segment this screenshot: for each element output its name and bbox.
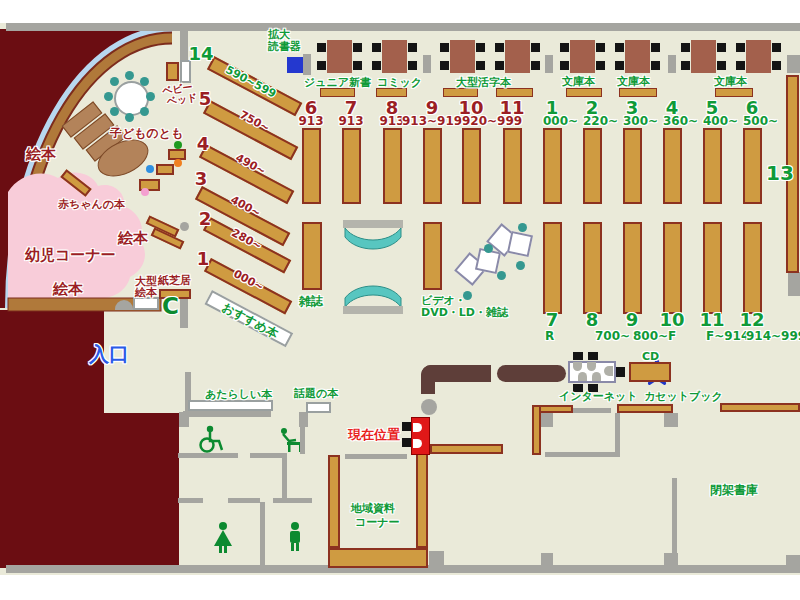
kids-chair: [140, 107, 149, 116]
bench-back-bottom: [343, 306, 403, 314]
chair: [372, 43, 381, 52]
chair: [616, 367, 625, 377]
shelf-range: 300~: [623, 115, 658, 128]
phone-icon: C: [162, 294, 179, 318]
shelf-number: 1: [188, 250, 218, 269]
av-shelf: [423, 222, 442, 290]
shelf-number: 10: [652, 311, 692, 330]
wall-segment: [300, 426, 305, 454]
shelf-range: 914~999: [746, 330, 800, 343]
chair: [531, 61, 540, 70]
library-floor-map: C 拡大 読書器 ジュニア新書 コミック 大型活字本 文庫本 文庫本 文庫本: [0, 0, 800, 600]
shelf-number: 9: [612, 311, 652, 330]
label-ehon: 絵本: [26, 147, 56, 163]
kids-chair: [104, 92, 113, 101]
local-docs-shelf: [328, 548, 428, 568]
wall-internet-room: [545, 452, 616, 457]
label-junior-shinsho: ジュニア新書: [304, 77, 371, 89]
label-local-docs-1: 地域資料: [351, 503, 395, 515]
marker-dot: [413, 423, 422, 432]
label-topic-books: 話題の本: [294, 388, 338, 400]
label-ehon: 絵本: [118, 231, 148, 247]
pillar: [541, 413, 553, 427]
chair: [736, 61, 745, 70]
chair: [588, 352, 598, 360]
kids-chair: [110, 107, 119, 116]
local-docs-shelf: [416, 453, 428, 548]
shelf-range: 500~: [743, 115, 778, 128]
chair: [772, 43, 781, 52]
shelf: [743, 222, 762, 314]
shelf: [443, 88, 478, 97]
label-toddler-corner: 幼児コーナー: [25, 248, 116, 264]
shelf: [623, 222, 642, 314]
shelf-range: R: [545, 330, 554, 343]
shelf: [302, 128, 321, 204]
label-shelf-13: 13: [766, 163, 794, 184]
male-toilet-icon: [290, 522, 300, 551]
bench-seat-top: [345, 228, 401, 249]
toilet-wall: [228, 498, 260, 503]
label-comic: コミック: [377, 77, 422, 89]
label-cd: CD: [642, 351, 659, 363]
chair: [476, 61, 485, 70]
cushion-pink: [141, 188, 149, 196]
shelf: [423, 128, 442, 204]
label-internet: インターネット: [559, 391, 638, 403]
chair: [596, 43, 605, 52]
step-block: [156, 164, 174, 175]
shelf: [342, 128, 361, 204]
new-books-shelf: [188, 400, 273, 411]
shelf: [543, 222, 562, 314]
kids-chair: [146, 92, 155, 101]
reading-table: [570, 40, 595, 73]
counter: [497, 365, 566, 382]
label-video-1: ビデオ・: [421, 295, 466, 307]
pillar: [541, 553, 553, 567]
wall-internet-room: [615, 413, 620, 457]
chair: [317, 43, 326, 52]
chair: [372, 61, 381, 70]
label-cassette-book: カセットブック: [644, 391, 723, 403]
toilet-wall: [282, 453, 287, 502]
carrel-chair: [484, 244, 493, 253]
magnifier-reader-device: [287, 57, 303, 73]
local-docs-shelf: [328, 455, 340, 548]
shelf-number: 8: [572, 311, 612, 330]
shelf-range: 000~: [543, 115, 578, 128]
label-current-location: 現在位置: [348, 428, 400, 442]
shelf: [743, 128, 762, 204]
chair: [615, 61, 624, 70]
label-closed-stacks: 閉架書庫: [710, 484, 758, 497]
label-new-books: あたらしい本: [205, 389, 272, 401]
pillar: [545, 55, 553, 73]
wall-local-room: [345, 454, 407, 459]
shelf-number: 4: [188, 135, 218, 154]
chair: [736, 43, 745, 52]
pillar: [423, 55, 431, 73]
shelf: [703, 128, 722, 204]
toilet-wall: [178, 498, 203, 503]
round-pillar: [421, 399, 437, 415]
chair: [495, 43, 504, 52]
label-ehon: 絵本: [53, 282, 83, 298]
monitor: [592, 372, 601, 381]
marker-block: [402, 438, 411, 447]
label-baby-books: 赤ちゃんの本: [58, 199, 125, 211]
bench-seat-bottom: [345, 286, 401, 307]
shelf-number: 7: [532, 311, 572, 330]
marker-block: [402, 422, 411, 431]
shelf: [503, 128, 522, 204]
counter: [421, 365, 435, 394]
shelf: [703, 222, 722, 314]
chair: [717, 61, 726, 70]
magazine-shelf: [302, 222, 322, 290]
label-ogata-katsuji: 大型活字本: [456, 77, 511, 89]
shelf: [663, 128, 682, 204]
wall-left-mid: [180, 296, 188, 328]
chair: [408, 61, 417, 70]
chair: [717, 43, 726, 52]
shelf-number: 3: [186, 170, 216, 189]
bench-back-top: [343, 220, 403, 228]
reading-table: [450, 40, 475, 73]
chair: [573, 352, 583, 360]
label-large-picture-books: 絵本: [135, 287, 157, 299]
label-local-docs-2: コーナー: [355, 517, 400, 529]
shelf-number: 12: [732, 311, 772, 330]
shelf: [566, 88, 602, 97]
chair: [615, 43, 624, 52]
wall-internet-room: [573, 408, 611, 413]
marker-dot: [413, 439, 422, 448]
shelf: [430, 444, 503, 454]
shelf: [583, 222, 602, 314]
cassette-book-shelf: [617, 404, 673, 413]
chair: [440, 61, 449, 70]
chair: [531, 43, 540, 52]
monitor: [587, 362, 596, 371]
kids-chair: [110, 77, 119, 86]
pillar: [664, 413, 678, 427]
wheelchair-icon: [201, 432, 223, 452]
label-magazines: 雑誌: [299, 295, 323, 308]
reading-table: [625, 40, 650, 73]
label-bunko-3: 文庫本: [714, 76, 747, 88]
chair: [353, 61, 362, 70]
shelf: [623, 128, 642, 204]
cushion-green: [174, 141, 182, 149]
shelf-range: 700~: [595, 330, 630, 343]
monitor: [604, 366, 613, 376]
shelf-range: 400~: [703, 115, 738, 128]
kids-chair: [125, 71, 134, 80]
shelf-number: 11: [692, 311, 732, 330]
toilet-wall: [273, 498, 312, 503]
label-video-2: DVD・LD・雑誌: [421, 307, 508, 319]
wheelchair-icon-head: [207, 426, 213, 432]
chair: [560, 43, 569, 52]
kids-chair: [125, 113, 134, 122]
label-entrance: 入口: [89, 344, 129, 365]
shelf: [462, 128, 481, 204]
carrel-desk: [507, 231, 533, 257]
label-magnifier-1: 拡大: [268, 29, 290, 41]
shelf-range: F: [668, 330, 676, 343]
toilet-wall: [178, 453, 238, 458]
chair: [440, 43, 449, 52]
cd-shelf: [629, 362, 671, 382]
chair: [596, 61, 605, 70]
pillar: [786, 555, 800, 567]
pillar: [668, 55, 676, 73]
shelf: [720, 403, 800, 412]
reading-table: [327, 40, 352, 73]
shelf-range: 800~: [633, 330, 668, 343]
chair: [317, 61, 326, 70]
baby-bed: [166, 62, 179, 81]
topic-books-shelf: [306, 402, 331, 413]
shelf: [376, 88, 407, 97]
chair: [681, 43, 690, 52]
shelf-number: 14: [186, 45, 216, 64]
shelf: [532, 405, 541, 455]
chair: [772, 61, 781, 70]
shelf-range: 360~: [663, 115, 698, 128]
wall-right: [788, 272, 800, 296]
cushion-blue: [146, 165, 154, 173]
chair: [681, 61, 690, 70]
shelf: [496, 88, 533, 97]
wall-top: [6, 23, 800, 31]
shelf: [543, 128, 562, 204]
diaper-change-icon: [281, 428, 302, 452]
label-magnifier-2: 読書器: [268, 41, 301, 53]
reading-table: [382, 40, 407, 73]
label-kamishibai: 紙芝居: [158, 275, 191, 287]
monitor: [573, 362, 582, 371]
shelf-number: 2: [190, 210, 220, 229]
label-bunko-2: 文庫本: [617, 76, 650, 88]
chair: [651, 61, 660, 70]
shelf: [583, 128, 602, 204]
carrel-chair: [518, 223, 527, 232]
carrel-chair: [497, 271, 506, 280]
shelf: [619, 88, 657, 97]
reading-table: [691, 40, 716, 73]
shelf-range: 913~919: [402, 115, 462, 128]
cushion-orange: [174, 159, 182, 167]
monitor: [578, 372, 587, 381]
chair: [476, 43, 485, 52]
reading-table: [746, 40, 771, 73]
chair: [495, 61, 504, 70]
chair: [408, 43, 417, 52]
shelf-range: 220~: [583, 115, 618, 128]
round-pillar: [180, 222, 189, 231]
reading-table: [505, 40, 530, 73]
female-toilet-icon: [214, 522, 232, 553]
shelf: [715, 88, 753, 97]
wall-newbooks: [183, 411, 271, 417]
chair: [353, 43, 362, 52]
carrel-chair: [516, 261, 525, 270]
shelf-range: F~914: [706, 330, 749, 343]
label-bunko-1: 文庫本: [562, 76, 595, 88]
pillar: [429, 551, 444, 567]
shelf-range: 920~999: [462, 115, 522, 128]
pillar: [787, 55, 800, 73]
wall-stacks: [672, 478, 677, 566]
pillar: [299, 412, 308, 427]
shelf: [383, 128, 402, 204]
chair: [651, 43, 660, 52]
chair: [560, 61, 569, 70]
shelf: [663, 222, 682, 314]
label-kodomo-no-tomo: 子どものとも: [110, 127, 183, 140]
toilet-wall: [260, 502, 265, 566]
pillar: [303, 54, 311, 75]
shelf: [320, 88, 355, 97]
kids-chair: [140, 77, 149, 86]
